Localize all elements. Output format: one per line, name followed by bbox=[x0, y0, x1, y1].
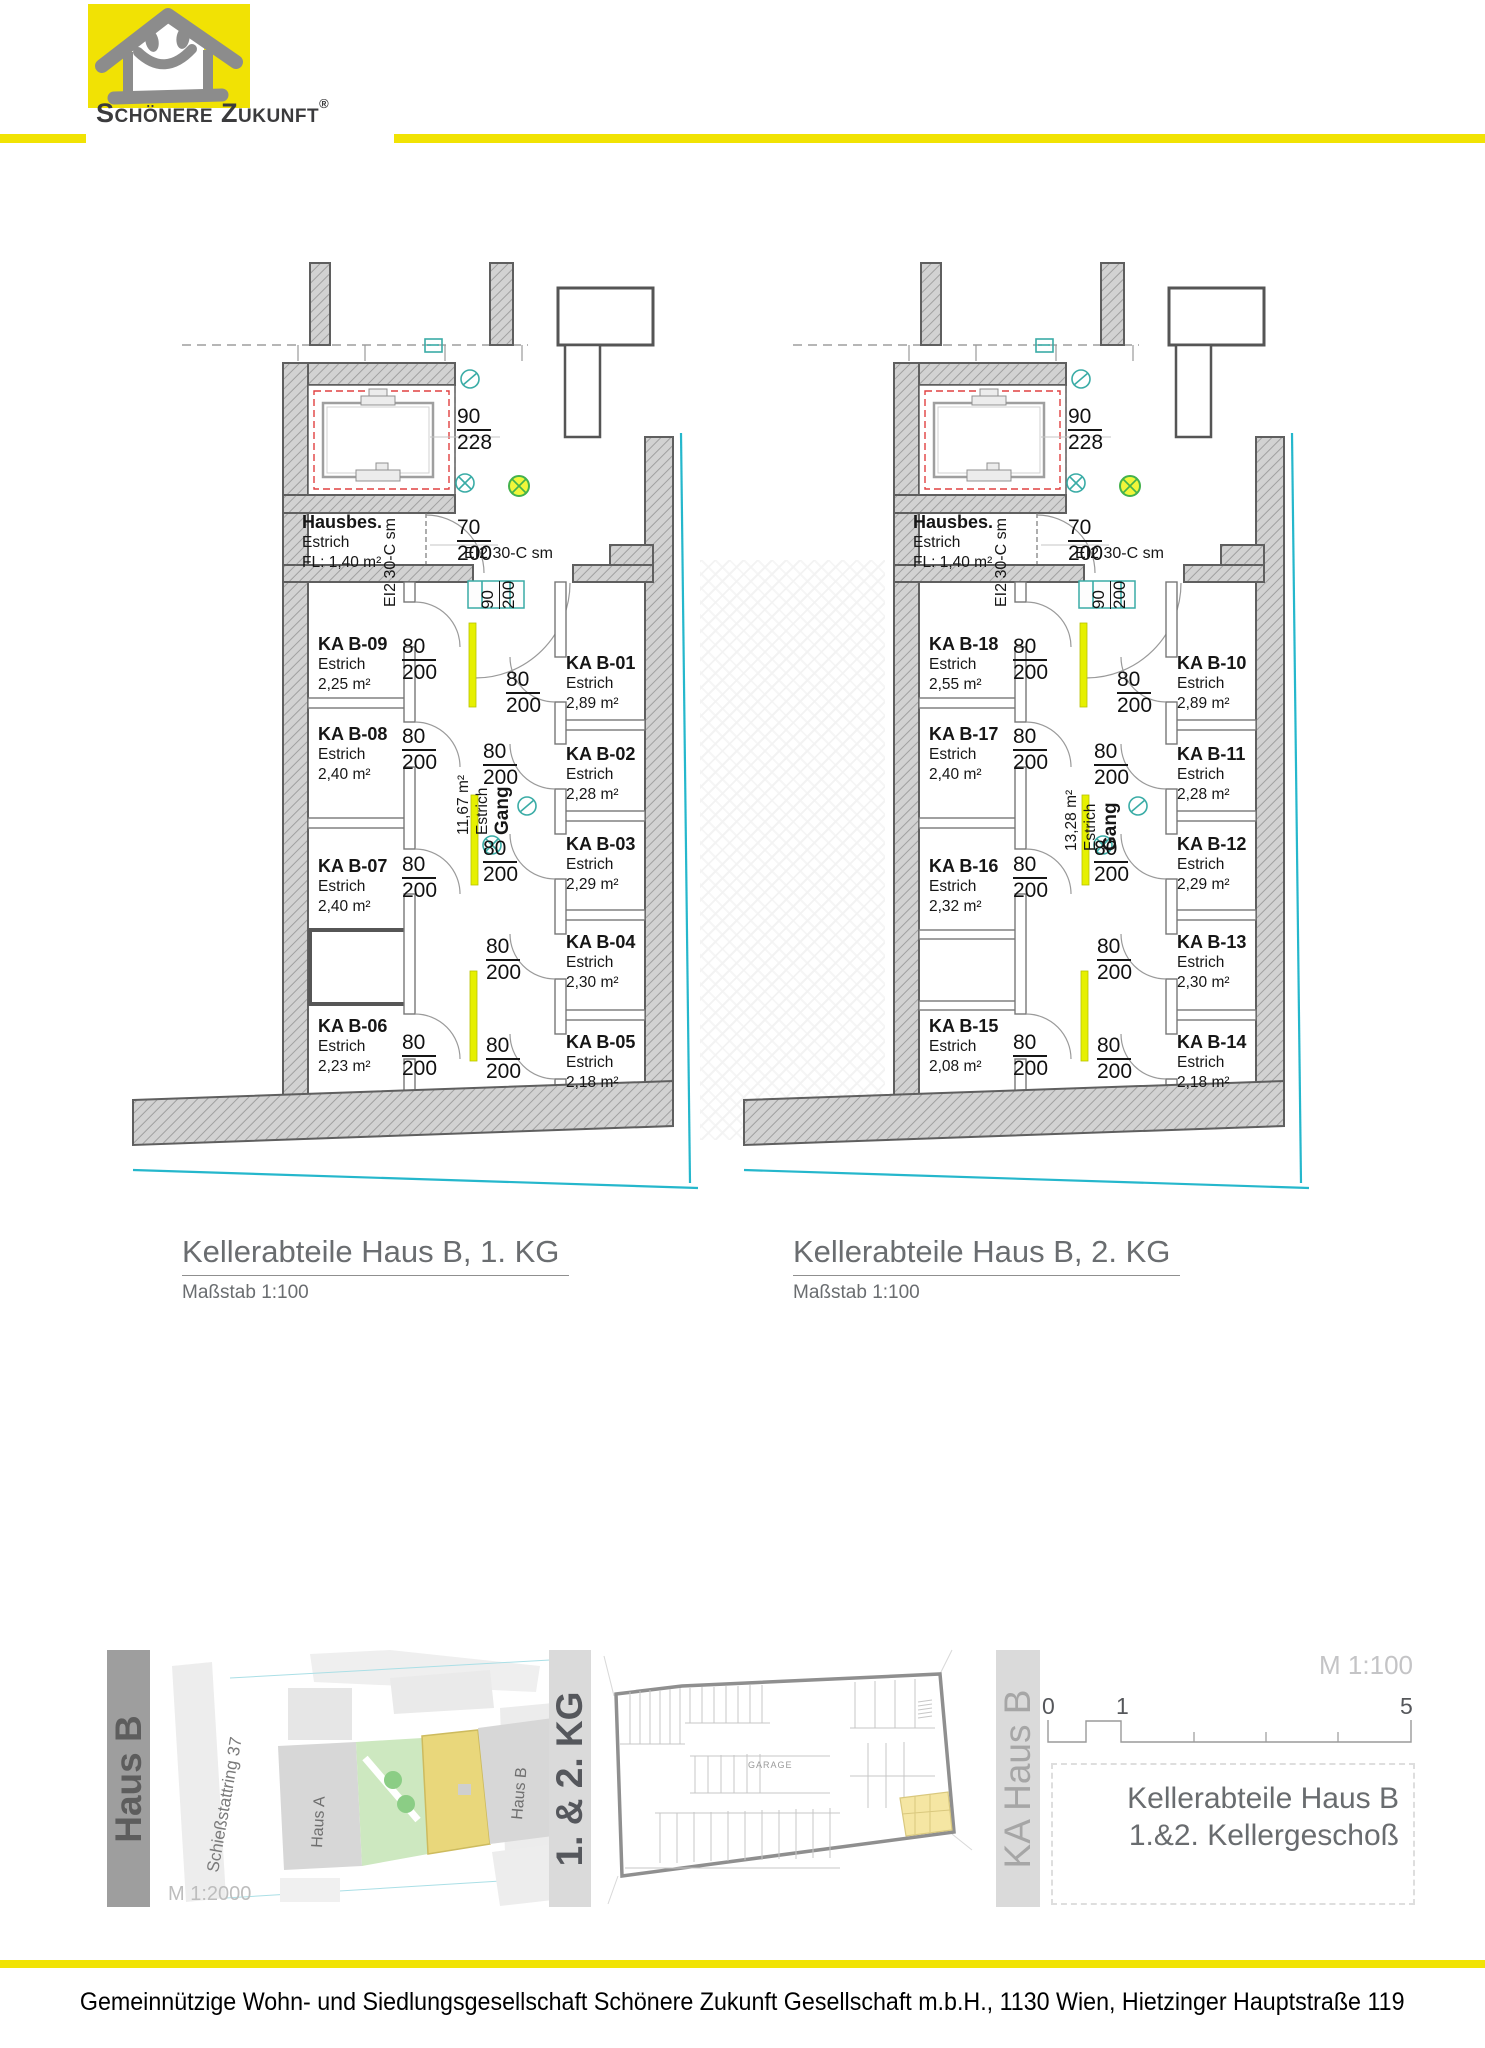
room-label-hausbes: Hausbes. Estrich FL: 1,40 m² bbox=[913, 511, 993, 572]
door-dim: 80200 bbox=[486, 935, 521, 984]
door-dim: 80200 bbox=[402, 1031, 437, 1080]
fire-door-highlight bbox=[469, 623, 476, 707]
door-dim: 80200 bbox=[1013, 1031, 1048, 1080]
key-plan: GARAGE bbox=[600, 1648, 975, 1913]
fire-door-highlight bbox=[470, 971, 477, 1061]
titleblock-scale: M 1:100 bbox=[1230, 1650, 1413, 1681]
footer: Gemeinnützige Wohn- und Siedlungsgesells… bbox=[0, 1988, 1485, 2017]
room-label: KA B-08Estrich2,40 m² bbox=[318, 723, 387, 784]
door-dim: 80200 bbox=[1094, 837, 1129, 886]
door-dim: 80200 bbox=[486, 1034, 521, 1083]
room-label: KA B-09Estrich2,25 m² bbox=[318, 633, 387, 694]
room-label: KA B-05Estrich2,18 m² bbox=[566, 1031, 635, 1092]
room-label: KA B-13Estrich2,30 m² bbox=[1177, 931, 1246, 992]
fire-rating-label-vertical: EI2 30-C sm bbox=[993, 518, 1011, 607]
door-dim: 80200 bbox=[402, 635, 437, 684]
title-block-line2: 1.&2. Kellergeschoß bbox=[1053, 1818, 1399, 1855]
door-dim: 80200 bbox=[1094, 740, 1129, 789]
brand-wordmark: Schönere Zukunft® bbox=[96, 96, 329, 129]
room-label: KA B-01Estrich2,89 m² bbox=[566, 652, 635, 713]
property-line bbox=[133, 1170, 698, 1188]
room-label: KA B-16Estrich2,32 m² bbox=[929, 855, 998, 916]
tree-icon bbox=[384, 1771, 402, 1789]
door-dim: 80200 bbox=[1013, 853, 1048, 902]
room-label-hausbes: Hausbes. Estrich FL: 1,40 m² bbox=[302, 511, 382, 572]
fire-door-highlight bbox=[1080, 623, 1087, 707]
room-label: KA B-11Estrich2,28 m² bbox=[1177, 743, 1245, 804]
fire-rating-label: EI2 30-C sm bbox=[1075, 545, 1164, 563]
garage-label: GARAGE bbox=[748, 1760, 793, 1770]
building-haus-b-highlight bbox=[422, 1730, 490, 1854]
room-label: KA B-17Estrich2,40 m² bbox=[929, 723, 998, 784]
dim-door-90: 90200 bbox=[479, 581, 518, 609]
sidebar-kg-level: 1. & 2. KG bbox=[549, 1650, 591, 1907]
sidebar-haus-b: Haus B bbox=[107, 1650, 150, 1907]
site-scale-label: M 1:2000 bbox=[168, 1883, 251, 1905]
plan-title-1kg: Kellerabteile Haus B, 1. KG Maßstab 1:10… bbox=[182, 1234, 569, 1304]
room-label: KA B-14Estrich2,18 m² bbox=[1177, 1031, 1246, 1092]
property-line bbox=[744, 1170, 1309, 1188]
door-dim: 80200 bbox=[506, 668, 541, 717]
door-dim: 80200 bbox=[402, 725, 437, 774]
door-dim: 80200 bbox=[402, 853, 437, 902]
haus-a-label: Haus A bbox=[309, 1795, 329, 1848]
garage-outline bbox=[616, 1674, 954, 1876]
sidebar-ka-haus-b: KA Haus B bbox=[996, 1650, 1040, 1907]
room-label: KA B-10Estrich2,89 m² bbox=[1177, 652, 1246, 713]
room-label: KA B-06Estrich2,23 m² bbox=[318, 1015, 387, 1076]
fire-door-highlight bbox=[1081, 971, 1088, 1061]
registered-mark: ® bbox=[319, 96, 329, 111]
dim-door-90: 90200 bbox=[1090, 581, 1129, 609]
door-dim: 80200 bbox=[1097, 1034, 1132, 1083]
door-dim: 80200 bbox=[1097, 935, 1132, 984]
room-label: KA B-12Estrich2,29 m² bbox=[1177, 833, 1246, 894]
shaft-niche bbox=[310, 930, 410, 1004]
room-label: KA B-15Estrich2,08 m² bbox=[929, 1015, 998, 1076]
scale-tick-5: 5 bbox=[1400, 1693, 1413, 1719]
door-dim: 80200 bbox=[483, 837, 518, 886]
logo-backdrop bbox=[86, 128, 394, 146]
scale-tick-0: 0 bbox=[1042, 1693, 1055, 1719]
door-dim: 80200 bbox=[1013, 635, 1048, 684]
scale-tick-1: 1 bbox=[1116, 1693, 1129, 1719]
floorplan-1kg: Hausbes. Estrich FL: 1,40 m² 90228 70200… bbox=[130, 255, 710, 1205]
room-label: KA B-07Estrich2,40 m² bbox=[318, 855, 387, 916]
door-dim: 80200 bbox=[483, 740, 518, 789]
room-label: KA B-04Estrich2,30 m² bbox=[566, 931, 635, 992]
room-label: KA B-18Estrich2,55 m² bbox=[929, 633, 998, 694]
dim-elevator: 90228 bbox=[457, 405, 492, 454]
title-block: Kellerabteile Haus B 1.&2. Kellergeschoß bbox=[1051, 1763, 1415, 1905]
fire-rating-label: EI2 30-C sm bbox=[464, 545, 553, 563]
floorplan-2kg: Hausbes. Estrich FL: 1,40 m² 90228 70200… bbox=[741, 255, 1321, 1205]
ceiling-light-symbol bbox=[1120, 476, 1140, 496]
property-line bbox=[1292, 433, 1301, 1183]
room-label: KA B-02Estrich2,28 m² bbox=[566, 743, 635, 804]
tree-icon bbox=[397, 1795, 415, 1813]
brand-name: Schönere Zukunft bbox=[96, 98, 319, 128]
title-block-line1: Kellerabteile Haus B bbox=[1053, 1781, 1399, 1818]
door-dim: 80200 bbox=[1117, 668, 1152, 717]
room-label: KA B-03Estrich2,29 m² bbox=[566, 833, 635, 894]
plan-title-2kg: Kellerabteile Haus B, 2. KG Maßstab 1:10… bbox=[793, 1234, 1180, 1304]
fire-rating-label-vertical: EI2 30-C sm bbox=[382, 518, 400, 607]
property-line bbox=[681, 433, 690, 1183]
drawing-sheet: Schönere Zukunft® bbox=[0, 0, 1485, 2048]
dim-elevator: 90228 bbox=[1068, 405, 1103, 454]
footer-accent-bar bbox=[0, 1960, 1485, 1968]
scale-bar: 0 1 5 bbox=[1040, 1690, 1420, 1748]
site-plan: Schießstattring 37 Haus A Haus B M 1:200… bbox=[160, 1648, 555, 1913]
door-dim: 80200 bbox=[1013, 725, 1048, 774]
ceiling-light-symbol bbox=[509, 476, 529, 496]
company-address: Gemeinnützige Wohn- und Siedlungsgesells… bbox=[80, 1988, 1405, 2017]
